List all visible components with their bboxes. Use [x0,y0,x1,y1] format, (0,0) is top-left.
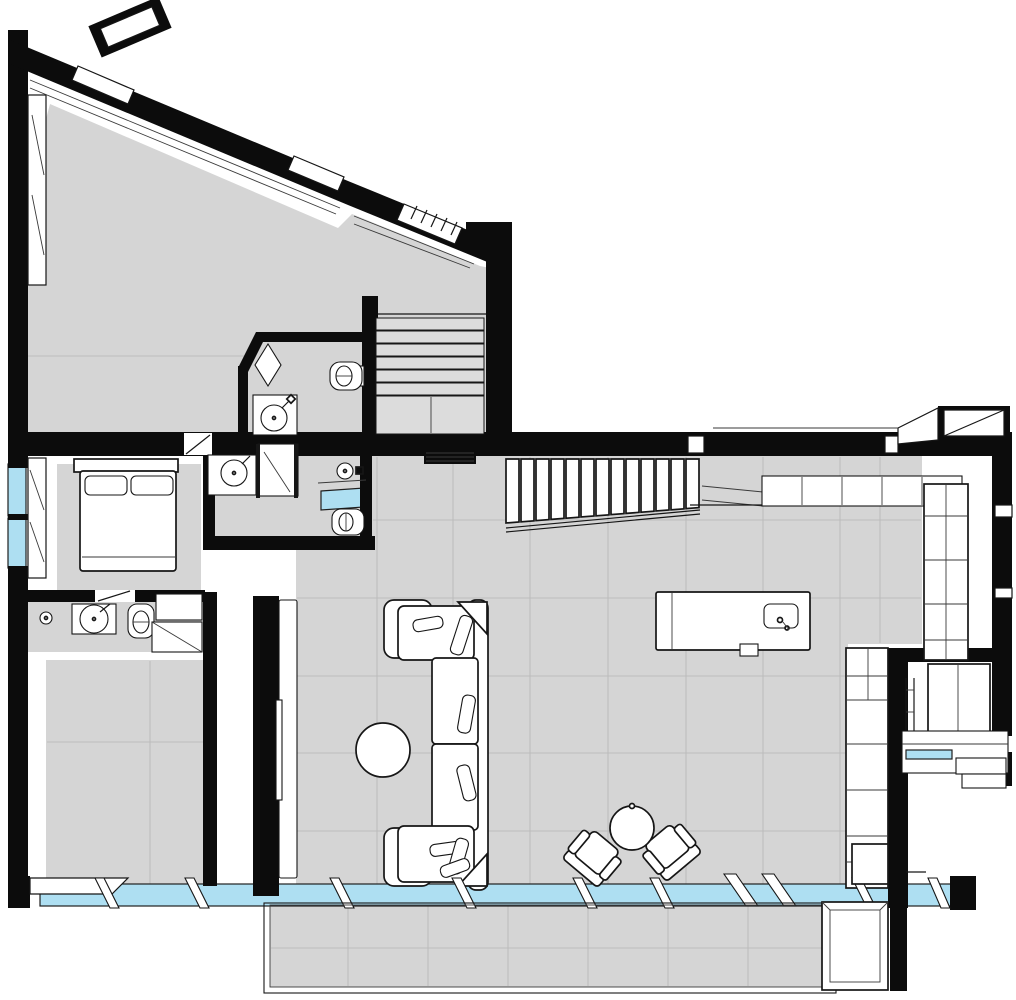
wall-corner-jog [466,222,512,248]
stair-tread [596,459,609,516]
wall-notch [995,505,1012,517]
closet-box [156,594,202,620]
step [962,774,1006,788]
stair-tread [551,459,564,519]
wall-notch [995,588,1012,598]
vent-grille [424,449,476,464]
stair-tread [626,459,639,513]
step [956,758,1006,774]
stair-tread [376,357,484,369]
bench-box [852,844,888,884]
upper-staircase [376,314,486,434]
wall-left-window-stub [8,514,28,520]
wall-right-mid [992,690,1012,736]
bathtub-glass [321,488,364,510]
coffee-table [356,723,410,777]
wall-accessory [356,467,363,474]
wardrobe [928,664,990,734]
wall-upper-bathroom-top [256,332,374,342]
wall-notch [885,436,898,453]
shower-stall [258,444,298,496]
stair-tread [656,459,669,511]
floor-drain-dot [45,617,48,620]
wall-notch [688,436,704,453]
wall-right-upper [992,438,1012,690]
washbasin-drain [93,618,96,621]
stair-tread [581,459,594,517]
side-table [610,806,654,850]
island-notch [740,644,758,656]
stair-tread [671,459,684,510]
side-table-detail [630,804,635,809]
wall-main-horizontal [8,432,1012,456]
stair-tread [506,459,519,523]
round-fixture-dot [344,470,347,473]
island-faucet [778,618,783,623]
stair-tread [376,370,484,382]
wall-glazing-end-corner [950,876,976,910]
wall-lower-bathroom-right [203,592,217,886]
wall-left-bedroom [8,456,28,468]
wall-ensuite-bottom [203,536,375,550]
bed-headboard [74,459,178,472]
washbasin-drain [233,472,236,475]
tv-screen [276,700,282,800]
bedroom-window-pane [8,464,26,516]
wall-media-partition [253,596,279,896]
stair-tread [686,459,699,509]
roof-wedge-top-right [898,408,938,444]
wall-stub-bottom-left [8,876,30,908]
bed-pillow [131,476,173,495]
floor-plan-page [0,0,1016,1000]
floor-lower-left-room [46,660,206,886]
wall-left-upper [8,30,28,432]
bedroom-window-pane [8,518,26,568]
wall-east [888,648,908,908]
stair-tread [566,459,579,518]
wall-upper-wing-right [486,248,512,432]
wall-left-lower [8,566,28,878]
stair-tread [376,318,484,330]
stair-landing [376,396,484,434]
stair-tread [536,459,549,521]
floor-terrace [270,905,830,987]
stair-tread [521,459,534,522]
floor-plan-canvas [0,0,1016,1000]
sill-wedge-bottom-left [30,878,128,894]
stair-tread [641,459,654,512]
planter-box [822,902,888,990]
stair-tread [611,459,624,515]
stair-tread [376,383,484,395]
desk-glass-strip [906,750,952,759]
bed-pillow [85,476,127,495]
floor-living-room [296,456,922,888]
stair-tread [376,331,484,343]
island-sink [764,604,798,628]
washbasin-drain [273,417,276,420]
wall-sill-strip-west [28,95,46,285]
wall-east-bottom [890,903,907,991]
stair-tread [376,344,484,356]
wall-upper-bathroom-left [238,366,248,432]
